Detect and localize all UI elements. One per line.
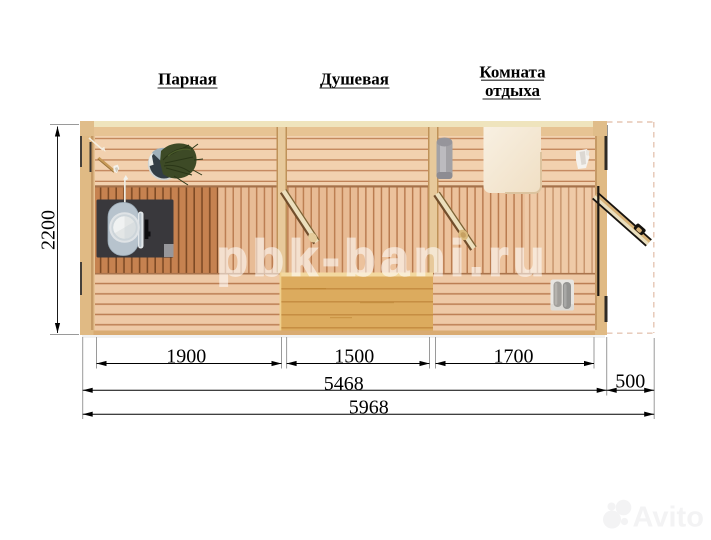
svg-text:Avito: Avito: [633, 502, 704, 534]
svg-text:1900: 1900: [166, 345, 206, 367]
svg-text:5968: 5968: [349, 397, 389, 419]
svg-text:1500: 1500: [334, 345, 374, 367]
svg-text:отдыха: отдыха: [485, 81, 541, 100]
svg-text:Душевая: Душевая: [320, 70, 389, 89]
svg-text:pbk-bani.ru: pbk-bani.ru: [217, 230, 550, 287]
svg-text:5468: 5468: [324, 373, 364, 395]
svg-text:2200: 2200: [38, 210, 60, 250]
svg-text:Комната: Комната: [479, 62, 546, 81]
svg-text:Парная: Парная: [158, 70, 217, 89]
svg-text:500: 500: [615, 371, 645, 393]
svg-text:1700: 1700: [494, 345, 534, 367]
